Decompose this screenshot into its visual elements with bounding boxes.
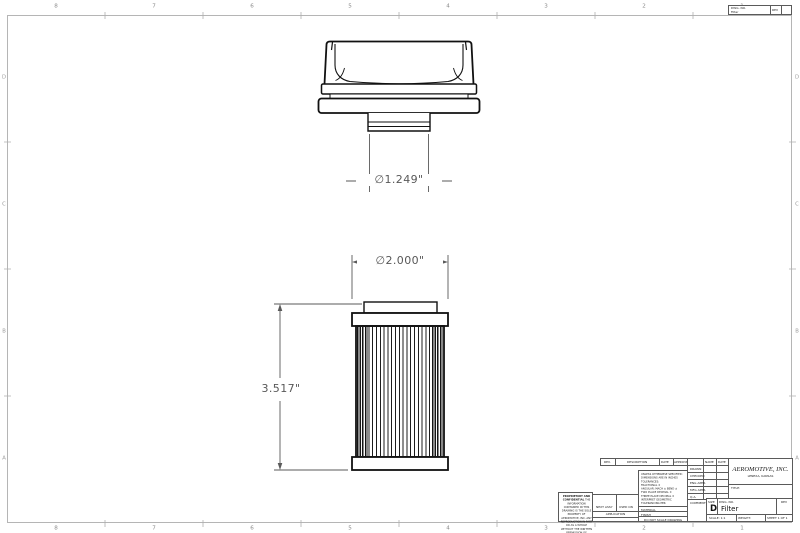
- approvals-row-label: ENG APPR.: [690, 482, 706, 485]
- company-location: LENEXA, KANSAS: [729, 475, 792, 478]
- zone-label: 1: [737, 526, 747, 532]
- filter-pleats: [357, 327, 443, 456]
- application-table: NEXT ASSY USED ON APPLICATION: [592, 494, 639, 522]
- weight-label: WEIGHT:: [738, 517, 751, 520]
- dimension-cap-diameter: ∅1.249": [356, 174, 442, 186]
- approvals-row-label: DRAWN: [690, 468, 701, 471]
- next-assy-label: NEXT ASSY: [596, 506, 613, 509]
- zone-label: A: [1, 456, 7, 461]
- approvals-row-label: MFG APPR.: [690, 489, 706, 492]
- size-dwg-row: SIZE D DWG. NO. Filter REV: [706, 498, 793, 515]
- divider: [717, 499, 718, 514]
- divider: [659, 459, 660, 465]
- divider: [593, 517, 638, 518]
- rev-strip-date: DATE: [661, 461, 669, 464]
- proprietary-cell: PROPRIETARY AND CONFIDENTIAL THE INFORMA…: [558, 492, 593, 522]
- zone-label: 2: [639, 4, 649, 10]
- date-column-header: DATE: [718, 461, 726, 464]
- divider: [736, 515, 737, 521]
- comments-cell: COMMENTS:: [687, 499, 707, 522]
- filter-pleats-right-edge: [432, 327, 443, 456]
- title-cell: TITLE:: [728, 484, 793, 499]
- zone-label: 3: [541, 526, 551, 532]
- approvals-row-label: CHECKED: [690, 475, 705, 478]
- revision-strip: REV. DESCRIPTION DATE APPROVED: [600, 458, 688, 466]
- tolerance-block: UNLESS OTHERWISE SPECIFIED: DIMENSIONS A…: [638, 470, 688, 507]
- do-not-scale-cell: DO NOT SCALE DRAWING: [638, 516, 688, 522]
- zone-label: 8: [51, 4, 61, 10]
- divider: [615, 459, 616, 465]
- zone-label: 5: [345, 526, 355, 532]
- mini-dwg-no: Filter: [731, 11, 738, 14]
- zone-label: 4: [443, 526, 453, 532]
- sheet-number: SHEET 1 OF 1: [767, 517, 788, 520]
- zone-label: 4: [443, 4, 453, 10]
- zone-label: C: [794, 202, 800, 207]
- drawing-sheet: 8 7 6 5 4 3 2 1 8 7 6 5 4 3 2 1 D C B A …: [0, 0, 800, 533]
- drawing-number: Filter: [721, 506, 738, 513]
- company-name: AEROMOTIVE, INC.: [729, 467, 792, 474]
- title-label: TITLE:: [731, 487, 740, 490]
- zone-label: 7: [149, 526, 159, 532]
- used-on-label: USED ON: [619, 506, 633, 509]
- zone-label: B: [794, 329, 800, 334]
- do-not-scale-label: DO NOT SCALE DRAWING: [639, 519, 687, 522]
- scale-value: SCALE: 1:1: [709, 517, 725, 520]
- zone-label: 3: [541, 4, 551, 10]
- divider: [781, 6, 782, 14]
- divider: [765, 515, 766, 521]
- mini-doc-strip: DWG. NO. Filter REV: [728, 5, 792, 15]
- zone-label: 5: [345, 4, 355, 10]
- application-label: APPLICATION: [593, 513, 638, 516]
- zone-label: C: [1, 202, 7, 207]
- dwg-no-label: DWG. NO.: [719, 501, 734, 504]
- zone-label: 8: [51, 526, 61, 532]
- zone-label: 6: [247, 526, 257, 532]
- name-column-header: NAME: [705, 461, 714, 464]
- mini-rev-label: REV: [772, 9, 778, 12]
- company-cell: AEROMOTIVE, INC. LENEXA, KANSAS: [728, 458, 793, 485]
- zone-label: 7: [149, 4, 159, 10]
- scale-row: SCALE: 1:1 WEIGHT: SHEET 1 OF 1: [706, 514, 793, 522]
- rev-label: REV: [781, 501, 787, 504]
- zone-label: A: [794, 456, 800, 461]
- zone-label: 2: [639, 526, 649, 532]
- zone-label: B: [1, 329, 7, 334]
- zone-label: D: [1, 75, 7, 80]
- dimension-element-height: 3.517": [257, 383, 305, 395]
- zone-label: D: [794, 75, 800, 80]
- divider: [776, 499, 777, 514]
- drawing-size: D: [710, 505, 717, 514]
- divider: [770, 6, 771, 14]
- divider: [616, 495, 617, 511]
- rev-strip-description: DESCRIPTION: [627, 461, 647, 464]
- proprietary-text: THE INFORMATION CONTAINED IN THIS DRAWIN…: [561, 498, 593, 533]
- dimension-element-diameter: ∅2.000": [357, 255, 443, 267]
- rev-strip-rev: REV.: [604, 461, 611, 464]
- filter-pleats-left-edge: [357, 327, 368, 456]
- zone-label: 6: [247, 4, 257, 10]
